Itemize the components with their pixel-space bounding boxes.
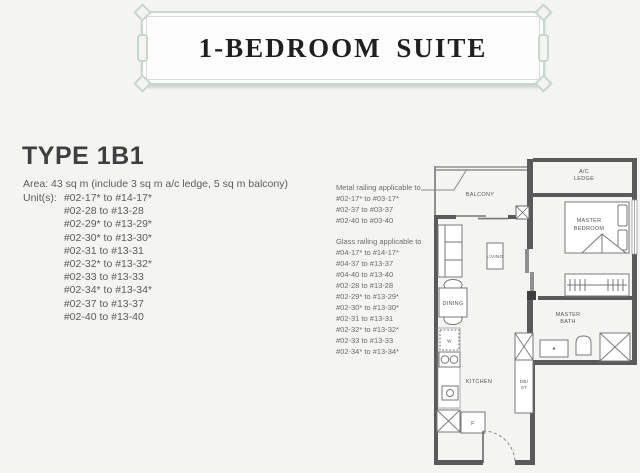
- living-label: LIVING: [487, 254, 504, 259]
- master-bedroom-label: MASTER: [577, 218, 602, 224]
- master-bath-label: MASTER: [556, 312, 581, 318]
- plaque-side-ornament: [538, 34, 549, 62]
- floorplan-diagram: BALCONY A/C LEDGE MASTER BEDROOM LIVING …: [412, 146, 640, 472]
- units-section: Unit(s): #02-17* to #14-17* #02-28 to #1…: [23, 192, 152, 324]
- dining-label: DINING: [442, 301, 463, 307]
- bedroom-window: [632, 200, 637, 254]
- unit-range: #02-17* to #14-17*: [64, 192, 152, 205]
- ac-unit-box: [516, 206, 529, 219]
- entry-door: [483, 431, 515, 463]
- unit-range: #02-40 to #13-40: [64, 311, 152, 324]
- kitchen-label: KITCHEN: [466, 379, 492, 385]
- master-bath-label: BATH: [560, 319, 575, 325]
- unit-range: #02-30* to #13-30*: [64, 232, 152, 245]
- plaque-corner-ornament: [534, 74, 552, 92]
- washer-label: W: [447, 339, 452, 344]
- unit-range: #02-37 to #13-37: [64, 298, 152, 311]
- area-line: Area: 43 sq m (include 3 sq m a/c ledge,…: [23, 178, 288, 190]
- balcony-label: BALCONY: [466, 192, 494, 198]
- dbst-label: DB/: [520, 379, 529, 384]
- units-list: #02-17* to #14-17* #02-28 to #13-28 #02-…: [64, 192, 152, 324]
- unit-range: #02-32* to #13-32*: [64, 258, 152, 271]
- plaque-corner-ornament: [133, 74, 151, 92]
- ac-ledge-label: A/C: [579, 169, 589, 175]
- unit-range: #02-34* to #13-34*: [64, 284, 152, 297]
- plaque-corner-ornament: [133, 3, 151, 21]
- unit-range: #02-29* to #13-29*: [64, 218, 152, 231]
- brochure-page: 1-BEDROOM SUITE TYPE 1B1 Area: 43 sq m (…: [0, 0, 640, 473]
- vanity: [540, 340, 568, 357]
- master-bedroom-label: BEDROOM: [574, 226, 605, 232]
- shower: [600, 333, 630, 361]
- bedroom-sliding-door: [525, 249, 534, 296]
- balcony-sliding-door: [456, 216, 508, 219]
- door-post: [527, 291, 536, 300]
- shaft-box: [437, 410, 460, 432]
- unit-range: #02-31 to #13-31: [64, 245, 152, 258]
- plaque-corner-ornament: [534, 3, 552, 21]
- ac-ledge-label: LEDGE: [574, 176, 594, 182]
- railing-leader-line: [421, 169, 467, 190]
- plaque-side-ornament: [137, 34, 148, 62]
- units-label: Unit(s):: [23, 192, 57, 324]
- type-title: TYPE 1B1: [22, 142, 144, 171]
- sink: [442, 386, 458, 400]
- sofa: [438, 225, 462, 277]
- bath-shaft-box: [515, 333, 533, 360]
- header-plaque: 1-BEDROOM SUITE: [141, 11, 545, 85]
- wardrobe: [565, 274, 629, 296]
- stove: [439, 352, 460, 367]
- fridge-label: F: [471, 421, 475, 427]
- dbst-label: ST: [521, 385, 527, 390]
- unit-range: #02-28 to #13-28: [64, 205, 152, 218]
- page-title: 1-BEDROOM SUITE: [199, 33, 488, 64]
- unit-range: #02-33 to #13-33: [64, 271, 152, 284]
- toilet: [576, 336, 591, 355]
